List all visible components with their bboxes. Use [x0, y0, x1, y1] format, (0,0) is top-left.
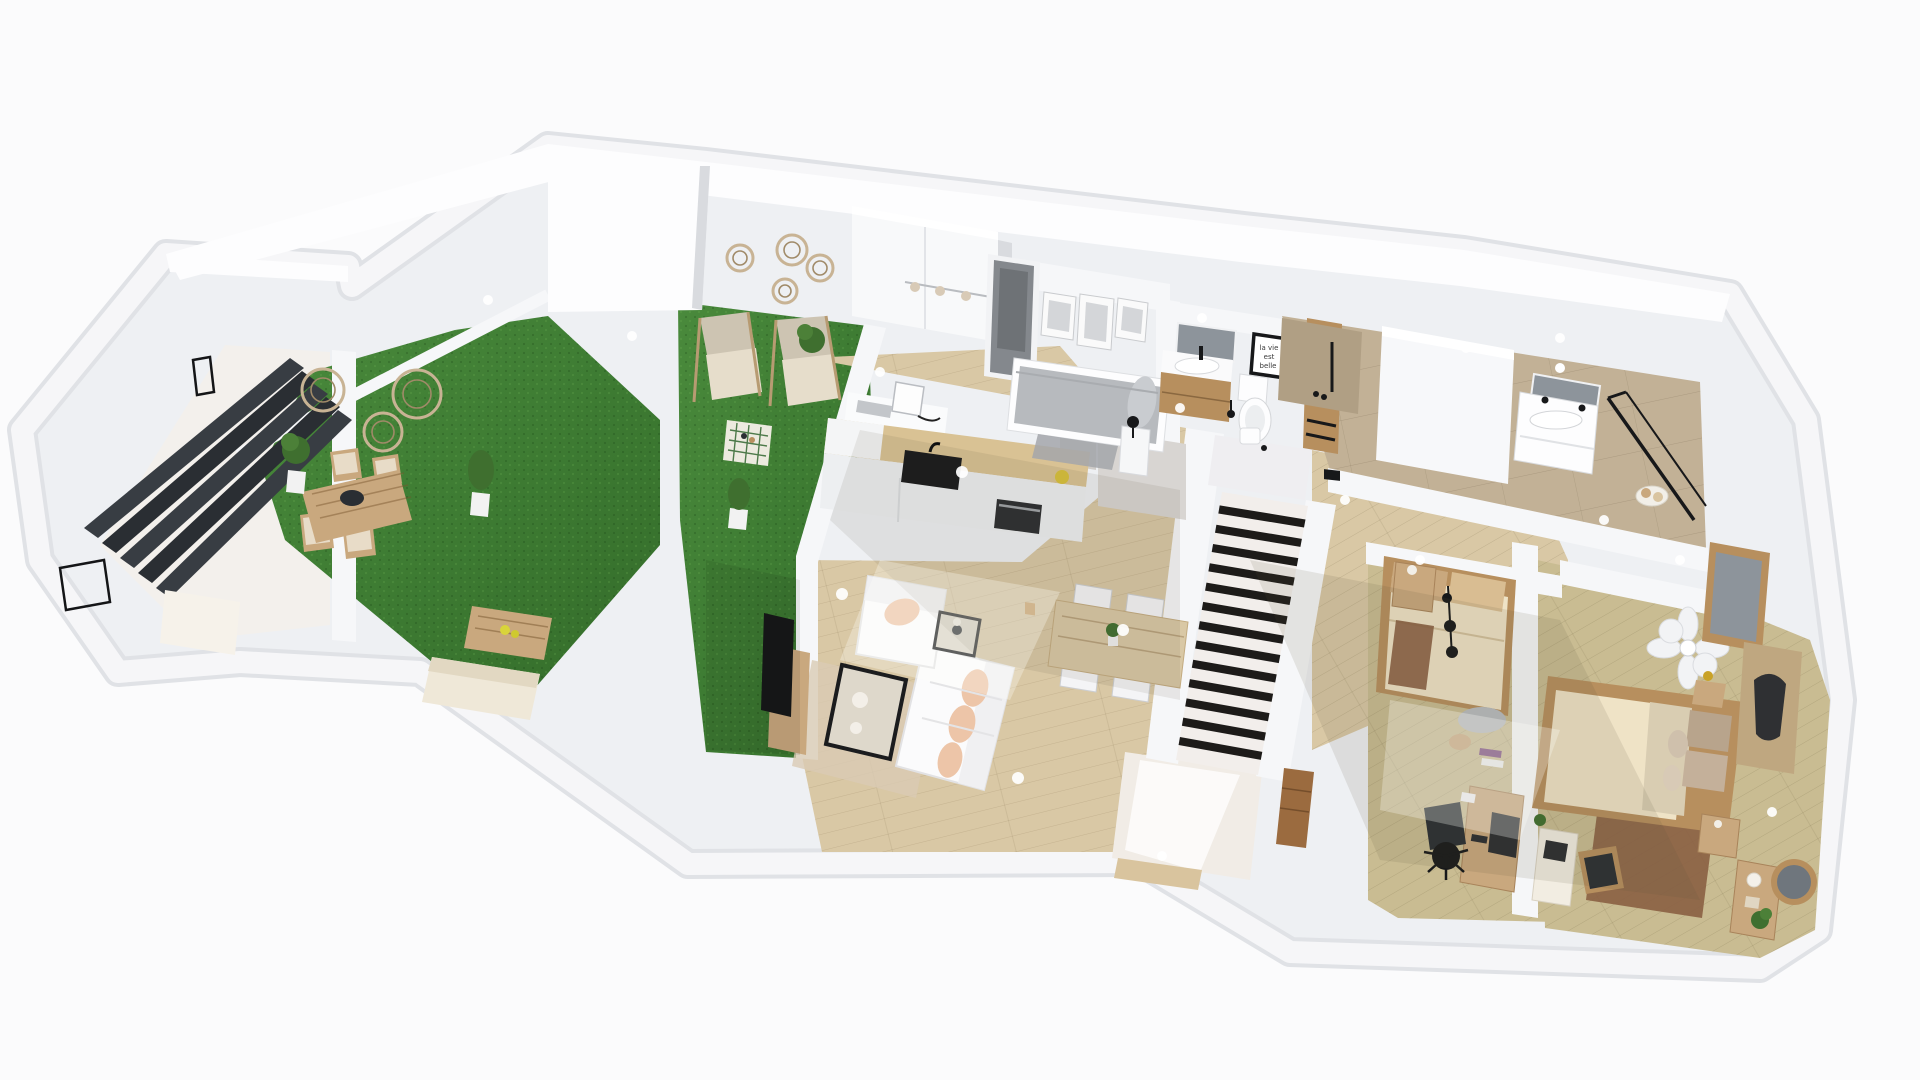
floorplan-stage: la vie est belle [0, 0, 1920, 1080]
sign-line: la vie [1260, 344, 1279, 352]
coffee-table [826, 665, 906, 759]
accent-pillow [1668, 730, 1688, 758]
plant-foliage [728, 478, 750, 510]
plant-pot [286, 470, 306, 494]
lemon [511, 630, 519, 638]
spotlight-icon [875, 367, 885, 377]
plant-foliage [468, 450, 494, 490]
taupe-pillow [1682, 750, 1728, 792]
console-plant [1760, 908, 1772, 920]
sign-line: est [1264, 353, 1275, 361]
plant-foliage [281, 433, 299, 451]
petal [1659, 619, 1683, 643]
basket [1636, 486, 1668, 506]
table-decor [850, 722, 862, 734]
sign-line: belle [1260, 362, 1277, 370]
taupe-pillow [1686, 710, 1732, 752]
plant-foliage [797, 324, 813, 340]
nightstand-body [1119, 426, 1150, 476]
lounge-seat-cushion [782, 354, 840, 406]
grass-shadow [706, 560, 800, 755]
light-bulb [935, 286, 945, 296]
wall-light [1555, 363, 1565, 373]
spotlight-icon [1767, 807, 1777, 817]
spotlight-icon [1012, 772, 1024, 784]
accent-pillow [1663, 765, 1681, 791]
spotlight-icon [956, 466, 968, 478]
bottle [741, 433, 747, 439]
spotlight-icon [836, 588, 848, 600]
coffee-table-top [826, 665, 906, 759]
black-table-lamp [1127, 416, 1139, 428]
towel-basket [1636, 486, 1668, 506]
dark-abstract-art [1736, 642, 1802, 774]
shower-bottle [1321, 394, 1327, 400]
nightstand-decor [1407, 565, 1417, 575]
picture-art [1084, 302, 1108, 342]
duvet-fold [1642, 702, 1692, 816]
mirror-glass [1710, 552, 1762, 642]
shower-head [1324, 469, 1340, 481]
wood-nightstand-2 [1698, 814, 1740, 858]
tall-terrace-wall [548, 148, 710, 312]
serving-bowl [340, 490, 364, 506]
spotlight-icon [1599, 515, 1609, 525]
lemon [500, 625, 510, 635]
spotlight-icon [1555, 333, 1565, 343]
floorplan-render: la vie est belle [0, 0, 1920, 1080]
candle-jar [1747, 873, 1761, 887]
wall-light [1197, 313, 1207, 323]
round-wall-mirror [1771, 859, 1817, 905]
light-bulb [910, 282, 920, 292]
nightstand-decor [1714, 820, 1722, 828]
door-glass [997, 268, 1028, 352]
outdoor-chair-cushion [333, 452, 358, 475]
pendant-center [1680, 640, 1696, 656]
table-decor [852, 692, 868, 708]
black-tap [1579, 405, 1586, 412]
shower-stone-wall [1278, 318, 1362, 414]
towel-roll [1653, 492, 1663, 502]
terrace-potted-plant-2 [728, 478, 750, 530]
partition-closet [1376, 326, 1514, 484]
bottle [749, 437, 755, 443]
shower-bottle [1313, 391, 1319, 397]
woven-side-table [723, 420, 772, 466]
spotlight-icon [483, 295, 493, 305]
spotlight-icon [1340, 495, 1350, 505]
light-bulb [961, 291, 971, 301]
towel-roll [1641, 488, 1651, 498]
spotlight-icon [1175, 403, 1185, 413]
spotlight-icon [1415, 555, 1425, 565]
round-mirror-glass [1777, 865, 1811, 899]
picture-art [1047, 300, 1071, 332]
spotlight-icon [627, 331, 637, 341]
spotlight-icon [1675, 555, 1685, 565]
monitor [892, 382, 924, 416]
decor-box [1744, 896, 1759, 909]
framed-wall-mirror [1702, 542, 1770, 652]
bin-body [1240, 428, 1260, 444]
gold-lamp [1703, 671, 1713, 681]
doorstop [1261, 445, 1267, 451]
plant-pot [728, 508, 748, 530]
spotlight-icon [1461, 343, 1471, 353]
black-tap [1542, 397, 1549, 404]
spotlight-icon [1157, 851, 1167, 861]
picture-art [1121, 306, 1143, 334]
vanity-body [1514, 392, 1598, 474]
sink-basin [1175, 358, 1219, 374]
nightstand-body [1692, 680, 1726, 708]
spotlight-icon [1117, 624, 1129, 636]
sink-basin [1530, 411, 1582, 429]
sink-faucet [1199, 346, 1203, 360]
plant-pot [470, 492, 490, 517]
